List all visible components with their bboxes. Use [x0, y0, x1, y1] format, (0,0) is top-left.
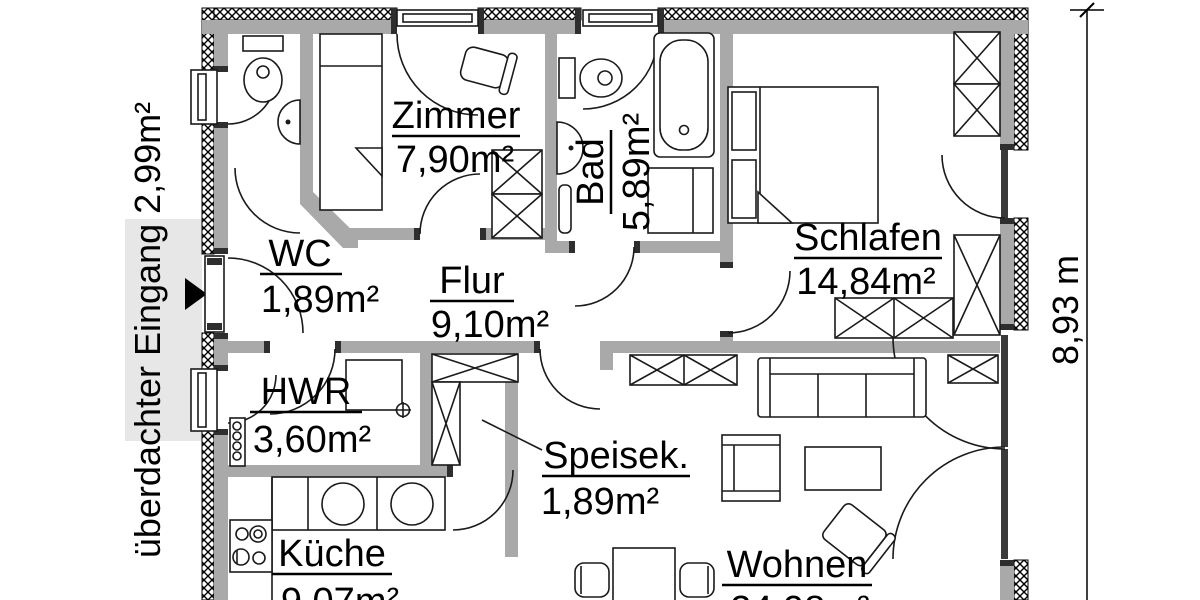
- kitchen-sink-icon: [391, 483, 433, 525]
- room-area-kueche: 9,07m²: [281, 581, 399, 600]
- toilet-icon: [243, 36, 283, 102]
- room-label-flur: Flur: [439, 260, 505, 302]
- hall-closets: [432, 354, 542, 465]
- room-area-schlafen: 14,84m²: [796, 261, 935, 303]
- toilet-icon: [559, 58, 622, 98]
- room-area-speisekammer: 1,89m²: [541, 481, 659, 523]
- bathtub-icon: [654, 33, 714, 157]
- room-label-wohnen: Wohnen: [727, 544, 868, 586]
- room-label-zimmer: Zimmer: [392, 95, 521, 137]
- armchair-icon: [722, 435, 780, 501]
- room-area-bad: 5,89m²: [616, 113, 658, 231]
- patio-door-leaf: [1001, 150, 1008, 218]
- sink-icon: [278, 100, 300, 144]
- tv-board-icon: [948, 355, 998, 383]
- room-label-kueche: Küche: [278, 533, 386, 575]
- french-door-leaf: [1001, 335, 1008, 447]
- sofa-icon: [758, 358, 926, 417]
- dining-table-icon: [613, 548, 675, 600]
- double-bed-icon: [728, 87, 878, 223]
- coffee-table-icon: [805, 447, 881, 490]
- room-area-wohnen: 24,98m²: [730, 589, 869, 600]
- chair-icon: [680, 563, 714, 597]
- building-depth-label: 8,93 m: [1045, 255, 1086, 365]
- room-area-zimmer: 7,90m²: [396, 139, 514, 181]
- single-bed-icon: [320, 34, 382, 210]
- room-label-bad: Bad: [570, 138, 612, 206]
- dimension-line: 8,93 m: [1045, 3, 1104, 600]
- washing-machine-icon: [346, 360, 402, 410]
- floor-plan: WC 1,89m² Zimmer 7,90m² Bad 5,89m² Schla…: [0, 0, 1200, 600]
- wc-furniture: [243, 36, 300, 144]
- french-door-leaf: [1001, 449, 1008, 559]
- chair-icon: [575, 563, 609, 597]
- kitchen-sink-icon: [322, 483, 364, 525]
- stove-icon: [230, 520, 272, 572]
- radiator-icon: [230, 418, 245, 466]
- room-label-speisekammer: Speisek.: [543, 435, 689, 477]
- room-area-wc: 1,89m²: [261, 279, 379, 321]
- entrance-door-leaf: [205, 256, 224, 332]
- wardrobe-icon: [835, 298, 953, 338]
- room-label-hwr: HWR: [261, 371, 352, 413]
- room-label-wc: WC: [268, 233, 331, 275]
- room-area-flur: 9,10m²: [431, 304, 549, 346]
- window-icon: [583, 10, 658, 26]
- window-icon: [397, 10, 478, 26]
- room-area-hwr: 3,60m²: [253, 419, 371, 461]
- sideboard-icon: [630, 355, 737, 385]
- dining-furniture: [575, 548, 714, 600]
- desk-chair-icon: [458, 42, 518, 96]
- wardrobe-icon: [954, 32, 1000, 335]
- covered-entrance-label: überdachter Eingang 2,99m²: [127, 102, 168, 558]
- window-icon: [191, 369, 217, 431]
- room-label-schlafen: Schlafen: [794, 217, 942, 259]
- window-icon: [191, 70, 217, 124]
